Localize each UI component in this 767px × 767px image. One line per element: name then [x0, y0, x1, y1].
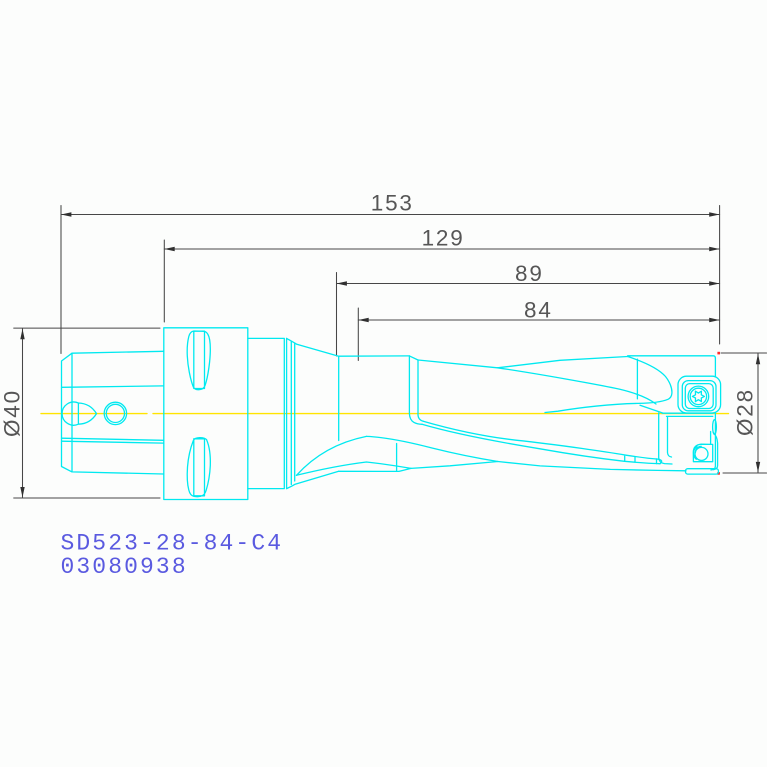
- svg-text:89: 89: [515, 261, 544, 286]
- svg-text:Ø28: Ø28: [733, 388, 758, 436]
- svg-text:Ø40: Ø40: [0, 389, 25, 437]
- svg-text:SD523-28-84-C4: SD523-28-84-C4: [61, 531, 284, 557]
- svg-text:129: 129: [422, 226, 465, 251]
- svg-text:03080938: 03080938: [61, 554, 188, 580]
- svg-text:153: 153: [371, 191, 414, 216]
- svg-text:84: 84: [524, 298, 553, 323]
